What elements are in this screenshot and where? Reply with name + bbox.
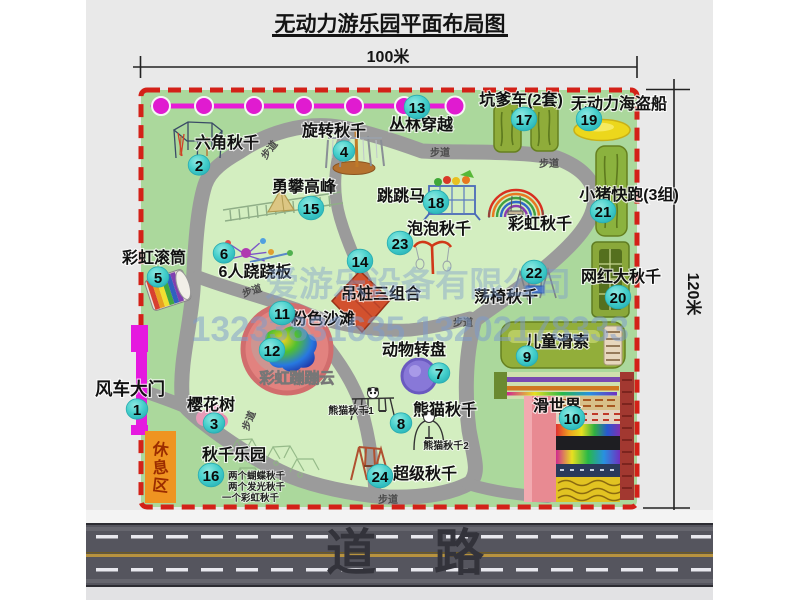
svg-text:4: 4 bbox=[340, 144, 349, 161]
svg-text:9: 9 bbox=[523, 349, 531, 366]
svg-text:15: 15 bbox=[303, 201, 320, 218]
svg-text:步道: 步道 bbox=[539, 157, 559, 170]
svg-text:18: 18 bbox=[428, 195, 445, 212]
svg-text:步道: 步道 bbox=[430, 146, 450, 159]
svg-text:区: 区 bbox=[151, 476, 169, 496]
svg-text:8: 8 bbox=[397, 416, 405, 433]
svg-text:17: 17 bbox=[516, 112, 533, 129]
svg-text:风车大门: 风车大门 bbox=[95, 379, 165, 399]
svg-text:5: 5 bbox=[154, 270, 162, 287]
svg-text:14: 14 bbox=[352, 254, 369, 271]
svg-text:无动力游乐园平面布局图: 无动力游乐园平面布局图 bbox=[275, 12, 506, 36]
svg-text:19: 19 bbox=[581, 112, 598, 129]
svg-text:熊猫秋千1: 熊猫秋千1 bbox=[328, 404, 374, 417]
svg-text:熊猫秋千: 熊猫秋千 bbox=[413, 400, 477, 419]
svg-text:网红大秋千: 网红大秋千 bbox=[581, 267, 661, 286]
svg-text:一个彩虹秋千: 一个彩虹秋千 bbox=[222, 492, 280, 504]
svg-text:旋转秋千: 旋转秋千 bbox=[301, 121, 366, 140]
svg-text:泡泡秋千: 泡泡秋千 bbox=[407, 219, 471, 238]
svg-text:24: 24 bbox=[372, 469, 389, 486]
svg-text:熊猫秋千2: 熊猫秋千2 bbox=[423, 439, 469, 452]
svg-text:六角秋千: 六角秋千 bbox=[195, 133, 259, 152]
svg-text:21: 21 bbox=[595, 204, 612, 221]
svg-text:小猪快跑(3组): 小猪快跑(3组) bbox=[579, 185, 679, 204]
svg-text:跳跳马: 跳跳马 bbox=[377, 186, 425, 205]
svg-text:16: 16 bbox=[203, 468, 220, 485]
svg-text:息: 息 bbox=[151, 457, 169, 478]
svg-text:彩虹滚筒: 彩虹滚筒 bbox=[121, 248, 186, 267]
svg-text:2: 2 bbox=[195, 158, 203, 175]
svg-text:两个发光秋千: 两个发光秋千 bbox=[228, 481, 286, 493]
svg-text:两个蝴蝶秋千: 两个蝴蝶秋千 bbox=[228, 470, 286, 482]
svg-text:7: 7 bbox=[435, 366, 443, 383]
svg-text:彩虹蹦蹦云: 彩虹蹦蹦云 bbox=[258, 369, 334, 387]
svg-text:13: 13 bbox=[409, 100, 426, 117]
svg-text:6: 6 bbox=[220, 246, 228, 263]
svg-text:道: 道 bbox=[326, 525, 376, 581]
svg-text:3: 3 bbox=[210, 416, 218, 433]
svg-text:22: 22 bbox=[526, 265, 543, 282]
svg-text:20: 20 bbox=[610, 290, 627, 307]
svg-text:坑爹车(2套): 坑爹车(2套) bbox=[479, 90, 563, 109]
svg-text:120米: 120米 bbox=[684, 273, 703, 317]
svg-text:11: 11 bbox=[274, 306, 290, 323]
svg-text:樱花树: 樱花树 bbox=[187, 395, 235, 414]
svg-text:12: 12 bbox=[264, 343, 281, 360]
svg-text:步道: 步道 bbox=[378, 493, 398, 506]
svg-text:1: 1 bbox=[133, 402, 141, 419]
svg-text:勇攀高峰: 勇攀高峰 bbox=[272, 177, 337, 196]
svg-text:100米: 100米 bbox=[367, 47, 411, 66]
svg-text:10: 10 bbox=[564, 411, 581, 428]
svg-text:秋千乐园: 秋千乐园 bbox=[202, 445, 266, 464]
svg-text:超级秋千: 超级秋千 bbox=[392, 464, 457, 483]
svg-text:路: 路 bbox=[434, 525, 485, 581]
svg-text:13233831635 13202178333: 13233831635 13202178333 bbox=[191, 310, 629, 349]
svg-text:彩虹秋千: 彩虹秋千 bbox=[507, 214, 572, 233]
svg-text:23: 23 bbox=[392, 236, 409, 253]
